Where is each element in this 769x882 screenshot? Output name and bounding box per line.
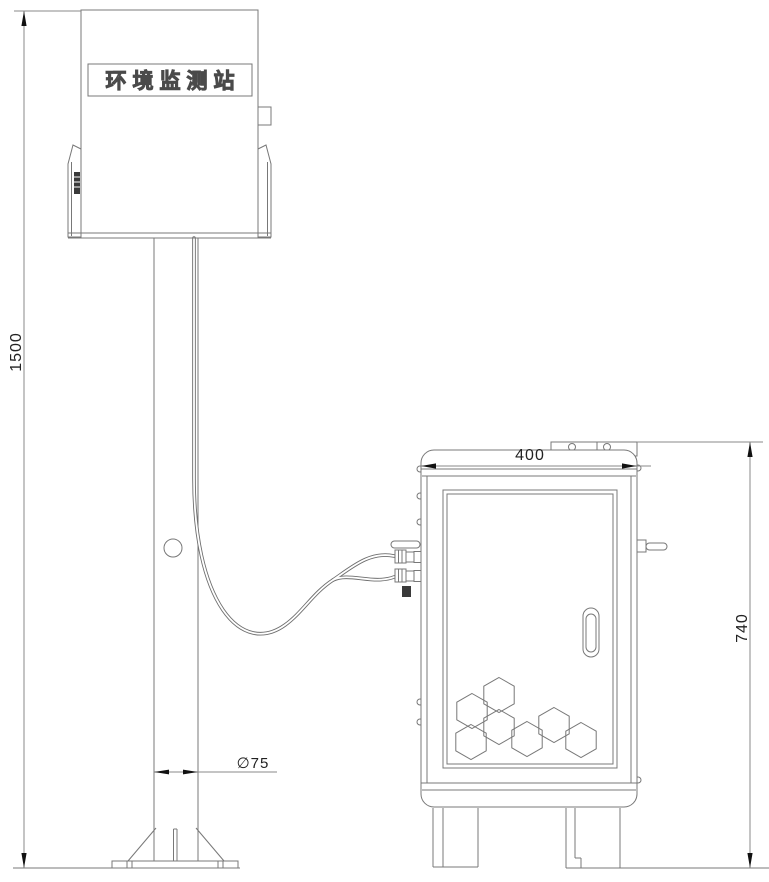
head-box-body [81, 10, 258, 233]
cabinet-height-arrow-bottom [747, 853, 752, 868]
pole-diameter-value: ∅75 [237, 755, 270, 772]
environmental-station-drawing: 环境监测站 [0, 0, 769, 882]
base-gusset-right [196, 828, 224, 861]
side-sensor-rod [637, 540, 667, 552]
gland-dark-connector [402, 586, 411, 597]
gland-rod [391, 541, 420, 548]
station-label-text: 环境监测站 [106, 69, 241, 93]
gland-upper [395, 550, 421, 563]
pole-height-arrow-bottom [21, 853, 26, 868]
cable-upper-run [194, 238, 394, 634]
base-gusset-left [128, 828, 156, 861]
cabinet-leg-right [566, 808, 620, 868]
cabinet-height-value: 740 [734, 613, 751, 643]
cabinet-legs [433, 808, 620, 868]
pole-hole [164, 539, 182, 557]
cable-upper-core [194, 238, 394, 634]
equipment-cabinet [391, 442, 667, 868]
pole-height-value: 1500 [8, 332, 25, 372]
base-plate [112, 861, 238, 868]
pole-diameter-arrow-right [183, 770, 198, 775]
pole-base [112, 828, 238, 868]
base-center-rib [174, 829, 178, 861]
pole-diameter-arrow-left [154, 770, 169, 775]
pole-height-arrow-top [21, 11, 26, 26]
head-box-side-tab [258, 107, 271, 125]
station-head-box: 环境监测站 [68, 10, 271, 238]
dimension-pole-diameter: ∅75 [154, 755, 277, 774]
cabinet-body [421, 450, 637, 807]
cabinet-width-value: 400 [515, 447, 545, 464]
cabinet-height-arrow-top [747, 442, 752, 457]
mounting-pole [154, 238, 198, 861]
technical-drawing-canvas: 环境监测站 [0, 0, 769, 882]
right-bracket [258, 145, 271, 237]
cable-gland-fittings [391, 541, 421, 597]
dimension-cabinet-height: 740 [637, 442, 763, 868]
bracket-hinge-detail [74, 172, 80, 194]
dimension-pole-height: 1500 [8, 11, 81, 868]
gland-lower [395, 569, 421, 582]
cabinet-leg-left [433, 808, 478, 867]
connection-cable [194, 238, 394, 634]
